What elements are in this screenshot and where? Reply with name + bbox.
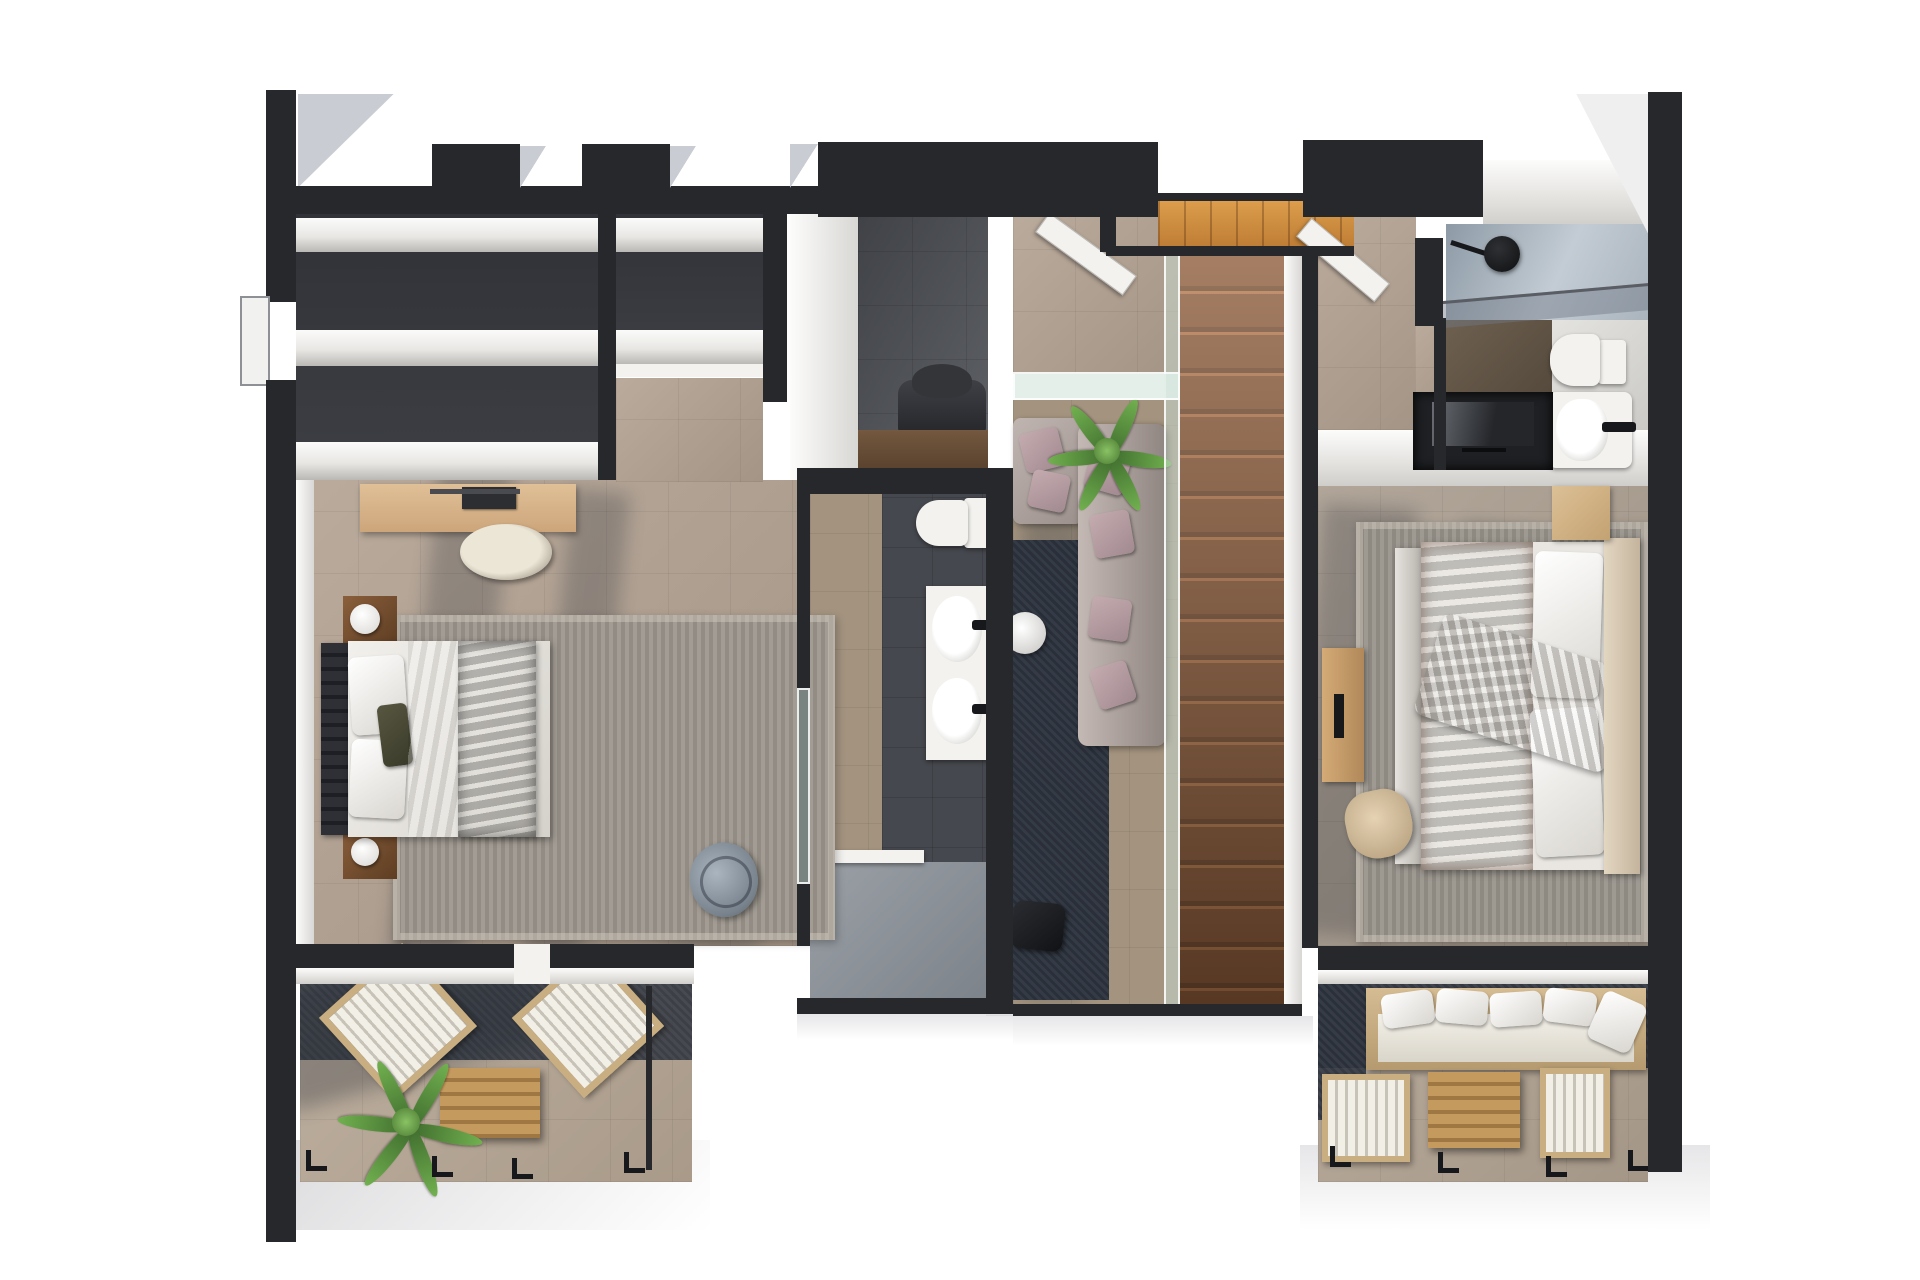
nook-armchair-back (912, 364, 972, 398)
toilet-bowl (1550, 334, 1600, 386)
closet-shelf (616, 218, 763, 252)
wall-top-raised (818, 142, 1158, 217)
railing-post (1628, 1150, 1649, 1171)
outdoor-pillow (1435, 988, 1490, 1026)
bed-duvet-folds (408, 641, 460, 837)
outdoor-pillow (1489, 990, 1543, 1028)
stair-glass-balustrade (1164, 250, 1180, 1006)
wall-bedroomR-bottom-face (1318, 970, 1648, 984)
pillar-shadow (298, 94, 394, 188)
window-left[interactable] (240, 296, 270, 386)
stair-stringer (1284, 250, 1302, 1006)
potted-palm (1056, 406, 1156, 506)
hall-floor (1013, 214, 1180, 374)
floorplan-stage (0, 0, 1920, 1280)
railing-post (432, 1156, 453, 1177)
wall-right (1648, 92, 1682, 1172)
basin-faucet (1602, 422, 1636, 432)
sofa-pillow (1088, 509, 1135, 559)
slab-edge (1013, 1016, 1313, 1046)
wall-bedroomL-bottom-face (296, 968, 694, 984)
glass-door-bathroom-mid[interactable] (797, 688, 810, 884)
coffee-table-slatted (1428, 1072, 1520, 1148)
wall-void-bottom (1013, 1004, 1302, 1016)
pillar-shadow (670, 146, 696, 188)
wall-bathroom-mid-bottom (797, 998, 1013, 1014)
bathroom-mid-shower-floor (810, 862, 986, 998)
wall-left-upper (266, 90, 296, 302)
closet-shelf (616, 330, 763, 364)
wall-top-parapet (582, 144, 670, 188)
railing-post (306, 1150, 327, 1171)
closet-side-wallface (790, 214, 858, 480)
dressing-strip-floor (616, 378, 763, 482)
wall-top (296, 186, 818, 214)
desk-chair (460, 524, 552, 580)
pillar-shadow (520, 146, 546, 188)
railing-post (1438, 1152, 1459, 1173)
wall-top-parapet (432, 144, 520, 188)
wall-left-lower (266, 380, 296, 1242)
bedroom-left-wallface (296, 480, 314, 944)
nightstand-right (1552, 486, 1610, 540)
tv-screen (1432, 402, 1534, 446)
wall-top-right-block (1303, 140, 1483, 217)
remote-on-sideboard (1334, 694, 1344, 738)
wall-vestibule-bathroom (1415, 238, 1443, 326)
wall-bedroomR-bottom (1318, 946, 1648, 970)
closet-divider (598, 214, 616, 480)
bed-blanket-olive (458, 641, 536, 837)
wall-bathroom-mid-top (797, 468, 1013, 494)
wall-stairs-right (1302, 250, 1318, 948)
outdoor-pillow (1542, 987, 1598, 1027)
bed-headboard (1604, 538, 1640, 874)
palm-center (392, 1108, 420, 1136)
railing-post (624, 1152, 645, 1173)
wall-bathroom-mid-right (986, 494, 1013, 1016)
bed-headboard (321, 643, 348, 835)
sofa-pillow (1087, 595, 1132, 642)
nightstand-lamp (351, 838, 379, 866)
terrace-door-gap[interactable] (514, 944, 550, 984)
shower-head (1484, 236, 1520, 272)
closet-shelf (296, 442, 598, 480)
closet-shelf (296, 330, 598, 366)
railing-post (1546, 1156, 1567, 1177)
slab-edge (797, 1014, 1013, 1040)
nightstand-lamp (350, 604, 380, 634)
wall-bedroomL-bottom (296, 944, 694, 970)
outdoor-pillow (1380, 989, 1436, 1030)
bench-below (1010, 899, 1067, 952)
side-chair (1540, 1068, 1610, 1158)
void-glass-rail (1013, 372, 1180, 400)
pillar-shadow (790, 144, 818, 188)
terrace-left-side-rail (646, 986, 652, 1170)
desk-keyboard (430, 489, 520, 494)
closet-shelf (296, 218, 598, 252)
closet-divider (763, 214, 787, 402)
wall-bathroom-tr-left (1434, 318, 1446, 470)
palm-center (1094, 438, 1120, 464)
closet-edge (616, 364, 763, 377)
railing-post (512, 1158, 533, 1179)
washbasin (1556, 399, 1608, 461)
wall-right-innerface (1576, 94, 1648, 234)
nook-console (858, 430, 988, 468)
toilet-bowl (916, 500, 968, 546)
toilet-tank (1598, 340, 1626, 384)
tv-stand (1462, 448, 1506, 452)
staircase-run (1180, 250, 1284, 1006)
railing-post (1330, 1146, 1351, 1167)
